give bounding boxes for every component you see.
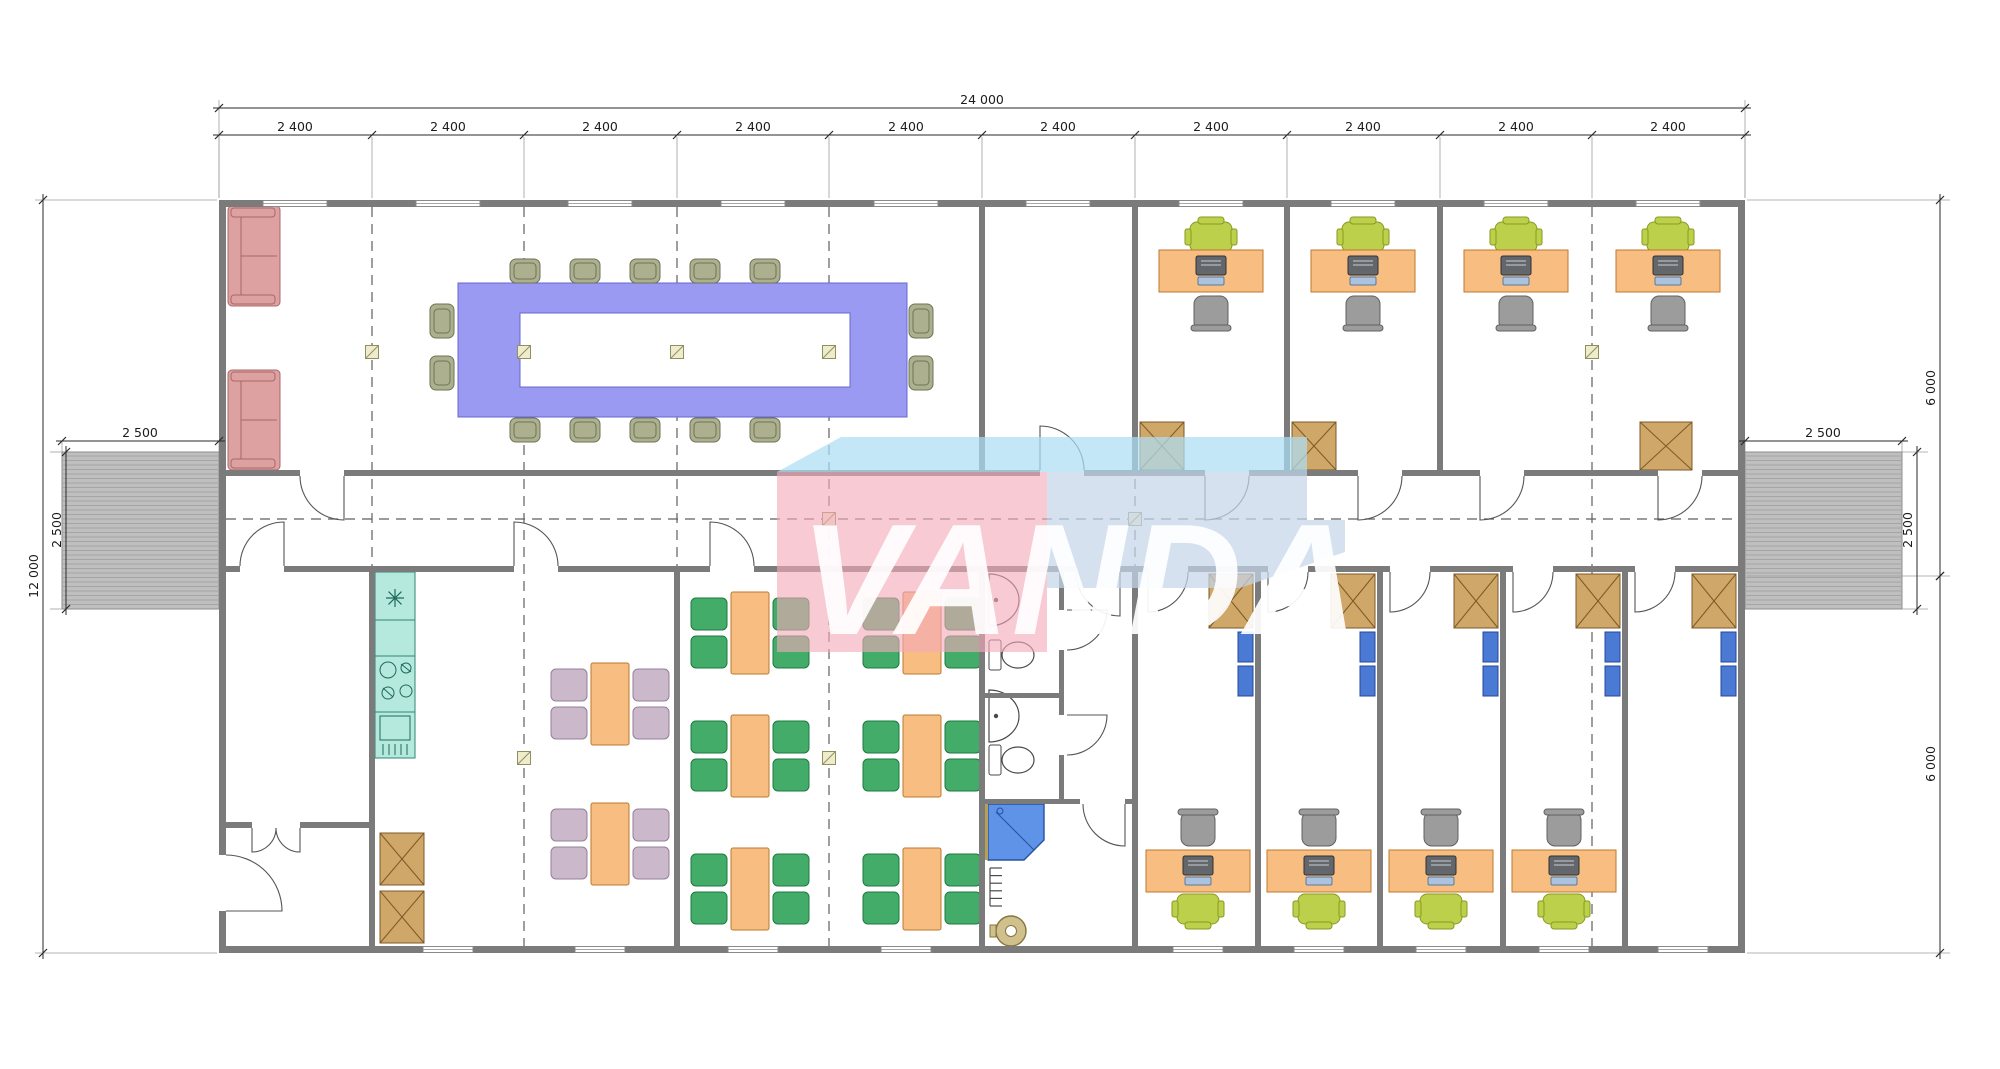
cafeteria-chair [863, 892, 899, 924]
task-chair [1647, 222, 1689, 252]
door-swing [1067, 715, 1107, 755]
sofa-armrest [231, 295, 275, 304]
wall [1524, 470, 1658, 476]
computer-keyboard-icon [1306, 877, 1332, 885]
dimension-label: 2 400 [735, 119, 771, 134]
door-swing [710, 522, 754, 566]
door-swing [1513, 572, 1553, 612]
sofa-armrest [231, 459, 275, 468]
task-chair-headrest [1428, 922, 1454, 929]
cafeteria-table [591, 663, 629, 745]
dimension-label: 2 500 [49, 512, 64, 548]
wall [219, 200, 226, 855]
dimension-label: 24 000 [960, 92, 1004, 107]
water-heater-pipe [990, 925, 996, 937]
conference-chair-seat [514, 422, 536, 438]
dimension-label: 2 400 [1040, 119, 1076, 134]
conference-chair-seat [574, 263, 596, 279]
toilet-bowl-icon [1002, 747, 1034, 773]
cafeteria-chair [551, 707, 587, 739]
wall [1500, 572, 1506, 946]
computer-keyboard-icon [1185, 877, 1211, 885]
wall [226, 470, 300, 476]
task-chair-arm [1383, 229, 1389, 245]
dimension-label: 2 400 [1345, 119, 1381, 134]
wall [369, 572, 375, 946]
visitor-chair-back [1496, 325, 1536, 331]
task-chair-arm [1218, 901, 1224, 917]
dimension-label: 2 400 [1650, 119, 1686, 134]
dimension-label: 2 400 [582, 119, 618, 134]
wall [985, 693, 1059, 698]
floor-plan-svg: 24 0002 4002 4002 4002 4002 4002 4002 40… [0, 0, 2000, 1069]
dimension-label: 2 400 [430, 119, 466, 134]
conference-chair-seat [634, 422, 656, 438]
conference-table-opening [520, 313, 850, 387]
cafeteria-chair [691, 759, 727, 791]
cafeteria-chair [863, 759, 899, 791]
cafeteria-chair [691, 721, 727, 753]
conference-chair-seat [514, 263, 536, 279]
wall [1132, 207, 1138, 470]
cafeteria-table [903, 715, 941, 797]
task-chair-arm [1185, 229, 1191, 245]
cafeteria-chair [633, 707, 669, 739]
sink-faucet-icon [994, 714, 998, 718]
shelf-unit [1360, 632, 1375, 662]
cafeteria-chair [945, 721, 981, 753]
wall [1622, 572, 1628, 946]
wall [1402, 470, 1480, 476]
task-chair-headrest [1551, 922, 1577, 929]
conference-chair-seat [913, 309, 929, 333]
task-chair-headrest [1185, 922, 1211, 929]
cafeteria-chair [773, 854, 809, 886]
shelf-unit [1605, 666, 1620, 696]
door-swing [226, 855, 282, 911]
task-chair-arm [1293, 901, 1299, 917]
cafeteria-chair [691, 636, 727, 668]
cafeteria-chair [773, 759, 809, 791]
wall [1377, 572, 1383, 946]
wall [558, 566, 710, 572]
task-chair-headrest [1306, 922, 1332, 929]
door-swing [300, 476, 344, 520]
wall [1437, 207, 1443, 470]
floor-plan: 24 0002 4002 4002 4002 4002 4002 4002 40… [0, 0, 2000, 1069]
task-chair-headrest [1655, 217, 1681, 224]
wall [1059, 755, 1064, 802]
door-swing [240, 522, 284, 566]
cafeteria-table [731, 848, 769, 930]
task-chair [1342, 222, 1384, 252]
door-swing [252, 828, 276, 852]
cafeteria-chair [863, 854, 899, 886]
door-swing [1480, 476, 1524, 520]
wall [1430, 566, 1513, 572]
cafeteria-table [591, 803, 629, 885]
task-chair [1495, 222, 1537, 252]
cafeteria-chair [691, 854, 727, 886]
visitor-chair-back [1648, 325, 1688, 331]
task-chair-arm [1415, 901, 1421, 917]
sofa-armrest [231, 372, 275, 381]
wall [985, 799, 1080, 804]
shelf-unit [1360, 666, 1375, 696]
task-chair-headrest [1503, 217, 1529, 224]
cafeteria-table [903, 848, 941, 930]
visitor-chair [1302, 812, 1336, 846]
conference-chair-seat [634, 263, 656, 279]
task-chair [1190, 222, 1232, 252]
dimension-label: 6 000 [1923, 746, 1938, 782]
computer-keyboard-icon [1198, 277, 1224, 285]
conference-chair-seat [913, 361, 929, 385]
task-chair-headrest [1198, 217, 1224, 224]
dimension-label: 2 500 [122, 425, 158, 440]
wall [1284, 207, 1290, 470]
conference-chair-seat [754, 422, 776, 438]
cafeteria-table [731, 592, 769, 674]
task-chair-arm [1172, 901, 1178, 917]
cafeteria-chair [551, 809, 587, 841]
dimension-label: 2 400 [888, 119, 924, 134]
dimension-label: 6 000 [1923, 370, 1938, 406]
visitor-chair [1547, 812, 1581, 846]
task-chair-arm [1490, 229, 1496, 245]
dimension-label: 2 400 [1498, 119, 1534, 134]
wall [284, 566, 514, 572]
cafeteria-chair [863, 721, 899, 753]
task-chair [1543, 894, 1585, 924]
wall [219, 911, 226, 953]
cafeteria-chair [945, 759, 981, 791]
computer-keyboard-icon [1655, 277, 1681, 285]
task-chair-arm [1642, 229, 1648, 245]
task-chair-arm [1339, 901, 1345, 917]
door-swing [276, 828, 300, 852]
task-chair-arm [1337, 229, 1343, 245]
wall [1738, 200, 1745, 953]
dimension-label: 2 400 [1193, 119, 1229, 134]
conference-chair-seat [754, 263, 776, 279]
task-chair-headrest [1350, 217, 1376, 224]
task-chair-arm [1231, 229, 1237, 245]
cafeteria-chair [691, 892, 727, 924]
dimension-label: 2 400 [277, 119, 313, 134]
wall [1675, 566, 1738, 572]
shelf-unit [1605, 632, 1620, 662]
wall [226, 566, 240, 572]
computer-keyboard-icon [1350, 277, 1376, 285]
door-swing [1358, 476, 1402, 520]
cafeteria-chair [633, 669, 669, 701]
task-chair [1177, 894, 1219, 924]
shelf-unit [1483, 632, 1498, 662]
watermark-band [777, 437, 1307, 472]
task-chair-arm [1538, 901, 1544, 917]
cafeteria-chair [633, 847, 669, 879]
cafeteria-table [731, 715, 769, 797]
watermark-text: VANDA [800, 492, 1360, 668]
cafeteria-chair [633, 809, 669, 841]
conference-chair-seat [694, 263, 716, 279]
task-chair [1420, 894, 1462, 924]
cafeteria-chair [945, 854, 981, 886]
cafeteria-chair [773, 721, 809, 753]
door-swing [1635, 572, 1675, 612]
cafeteria-chair [551, 847, 587, 879]
shelf-unit [1721, 666, 1736, 696]
visitor-chair [1181, 812, 1215, 846]
task-chair-arm [1461, 901, 1467, 917]
wall [1553, 566, 1635, 572]
wall [226, 822, 252, 828]
conference-chair-seat [434, 361, 450, 385]
shelf-unit [1238, 666, 1253, 696]
conference-chair-seat [574, 422, 596, 438]
door-swing [514, 522, 558, 566]
shelf-unit [1721, 632, 1736, 662]
dimension-label: 2 500 [1805, 425, 1841, 440]
wall [1702, 470, 1738, 476]
water-heater-core [1006, 926, 1017, 937]
visitor-chair-back [1421, 809, 1461, 815]
visitor-chair-back [1299, 809, 1339, 815]
task-chair-arm [1584, 901, 1590, 917]
wall [674, 572, 680, 946]
task-chair-arm [1536, 229, 1542, 245]
door-swing [1658, 476, 1702, 520]
dimension-label: 12 000 [26, 554, 41, 598]
visitor-chair [1424, 812, 1458, 846]
visitor-chair-back [1343, 325, 1383, 331]
computer-keyboard-icon [1428, 877, 1454, 885]
door-swing [1083, 804, 1125, 846]
computer-keyboard-icon [1551, 877, 1577, 885]
cafeteria-chair [945, 892, 981, 924]
cafeteria-chair [773, 892, 809, 924]
sofa-armrest [231, 208, 275, 217]
task-chair [1298, 894, 1340, 924]
shelf-unit [1483, 666, 1498, 696]
toilet-tank-icon [989, 745, 1001, 775]
wall [1125, 799, 1135, 804]
conference-chair-seat [434, 309, 450, 333]
task-chair-arm [1688, 229, 1694, 245]
computer-keyboard-icon [1503, 277, 1529, 285]
cafeteria-chair [691, 598, 727, 630]
visitor-chair-back [1544, 809, 1584, 815]
visitor-chair-back [1178, 809, 1218, 815]
visitor-chair-back [1191, 325, 1231, 331]
entrance-ramp [62, 452, 219, 609]
wall [979, 207, 985, 470]
door-swing [1390, 572, 1430, 612]
wall [300, 822, 369, 828]
entrance-ramp [1745, 452, 1902, 609]
conference-chair-seat [694, 422, 716, 438]
dimension-label: 2 500 [1900, 512, 1915, 548]
cafeteria-chair [551, 669, 587, 701]
